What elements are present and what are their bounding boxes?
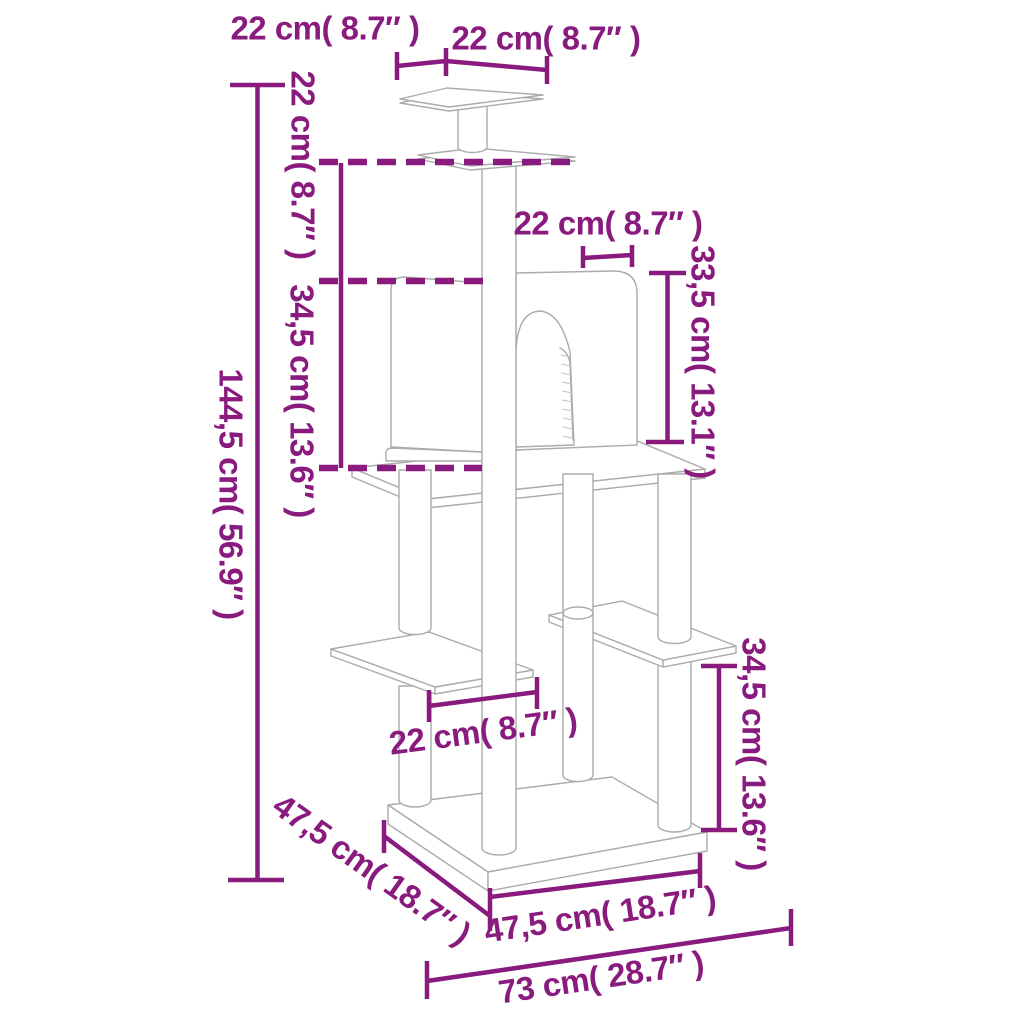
label-overall-height: 144,5 cm( 56.9″ ) xyxy=(213,368,250,619)
post-under-right-platform xyxy=(658,656,691,832)
label-condo-height: 33,5 cm( 13.1″ ) xyxy=(685,245,722,478)
lower-height-dim-lines xyxy=(701,666,737,830)
right-mid-post xyxy=(658,474,691,644)
condo-height-dim-lines xyxy=(646,273,686,442)
condo-width-dim-lines xyxy=(583,245,632,268)
label-top-platform-depth: 22 cm( 8.7″ ) xyxy=(230,10,419,47)
label-condo-depth: 22 cm( 8.7″ ) xyxy=(513,205,702,242)
label-top-tier-height: 22 cm( 8.7″ ) xyxy=(285,70,322,259)
center-tall-post xyxy=(482,161,516,855)
label-top-platform-width: 22 cm( 8.7″ ) xyxy=(451,20,640,57)
label-lower-tier-height: 34,5 cm( 13.6″ ) xyxy=(736,637,773,870)
label-base-width: 47,5 cm( 18.7″ ) xyxy=(482,878,718,949)
left-mid-post xyxy=(399,470,431,635)
cat-tree-dimension-diagram: 22 cm( 8.7″ ) 22 cm( 8.7″ ) 22 cm( 8.7″ … xyxy=(0,0,1024,1024)
diagram-canvas: 22 cm( 8.7″ ) 22 cm( 8.7″ ) 22 cm( 8.7″ … xyxy=(0,0,1024,1024)
label-middle-tier-height: 34,5 cm( 13.6″ ) xyxy=(284,284,321,517)
condo-left-face xyxy=(391,277,482,452)
